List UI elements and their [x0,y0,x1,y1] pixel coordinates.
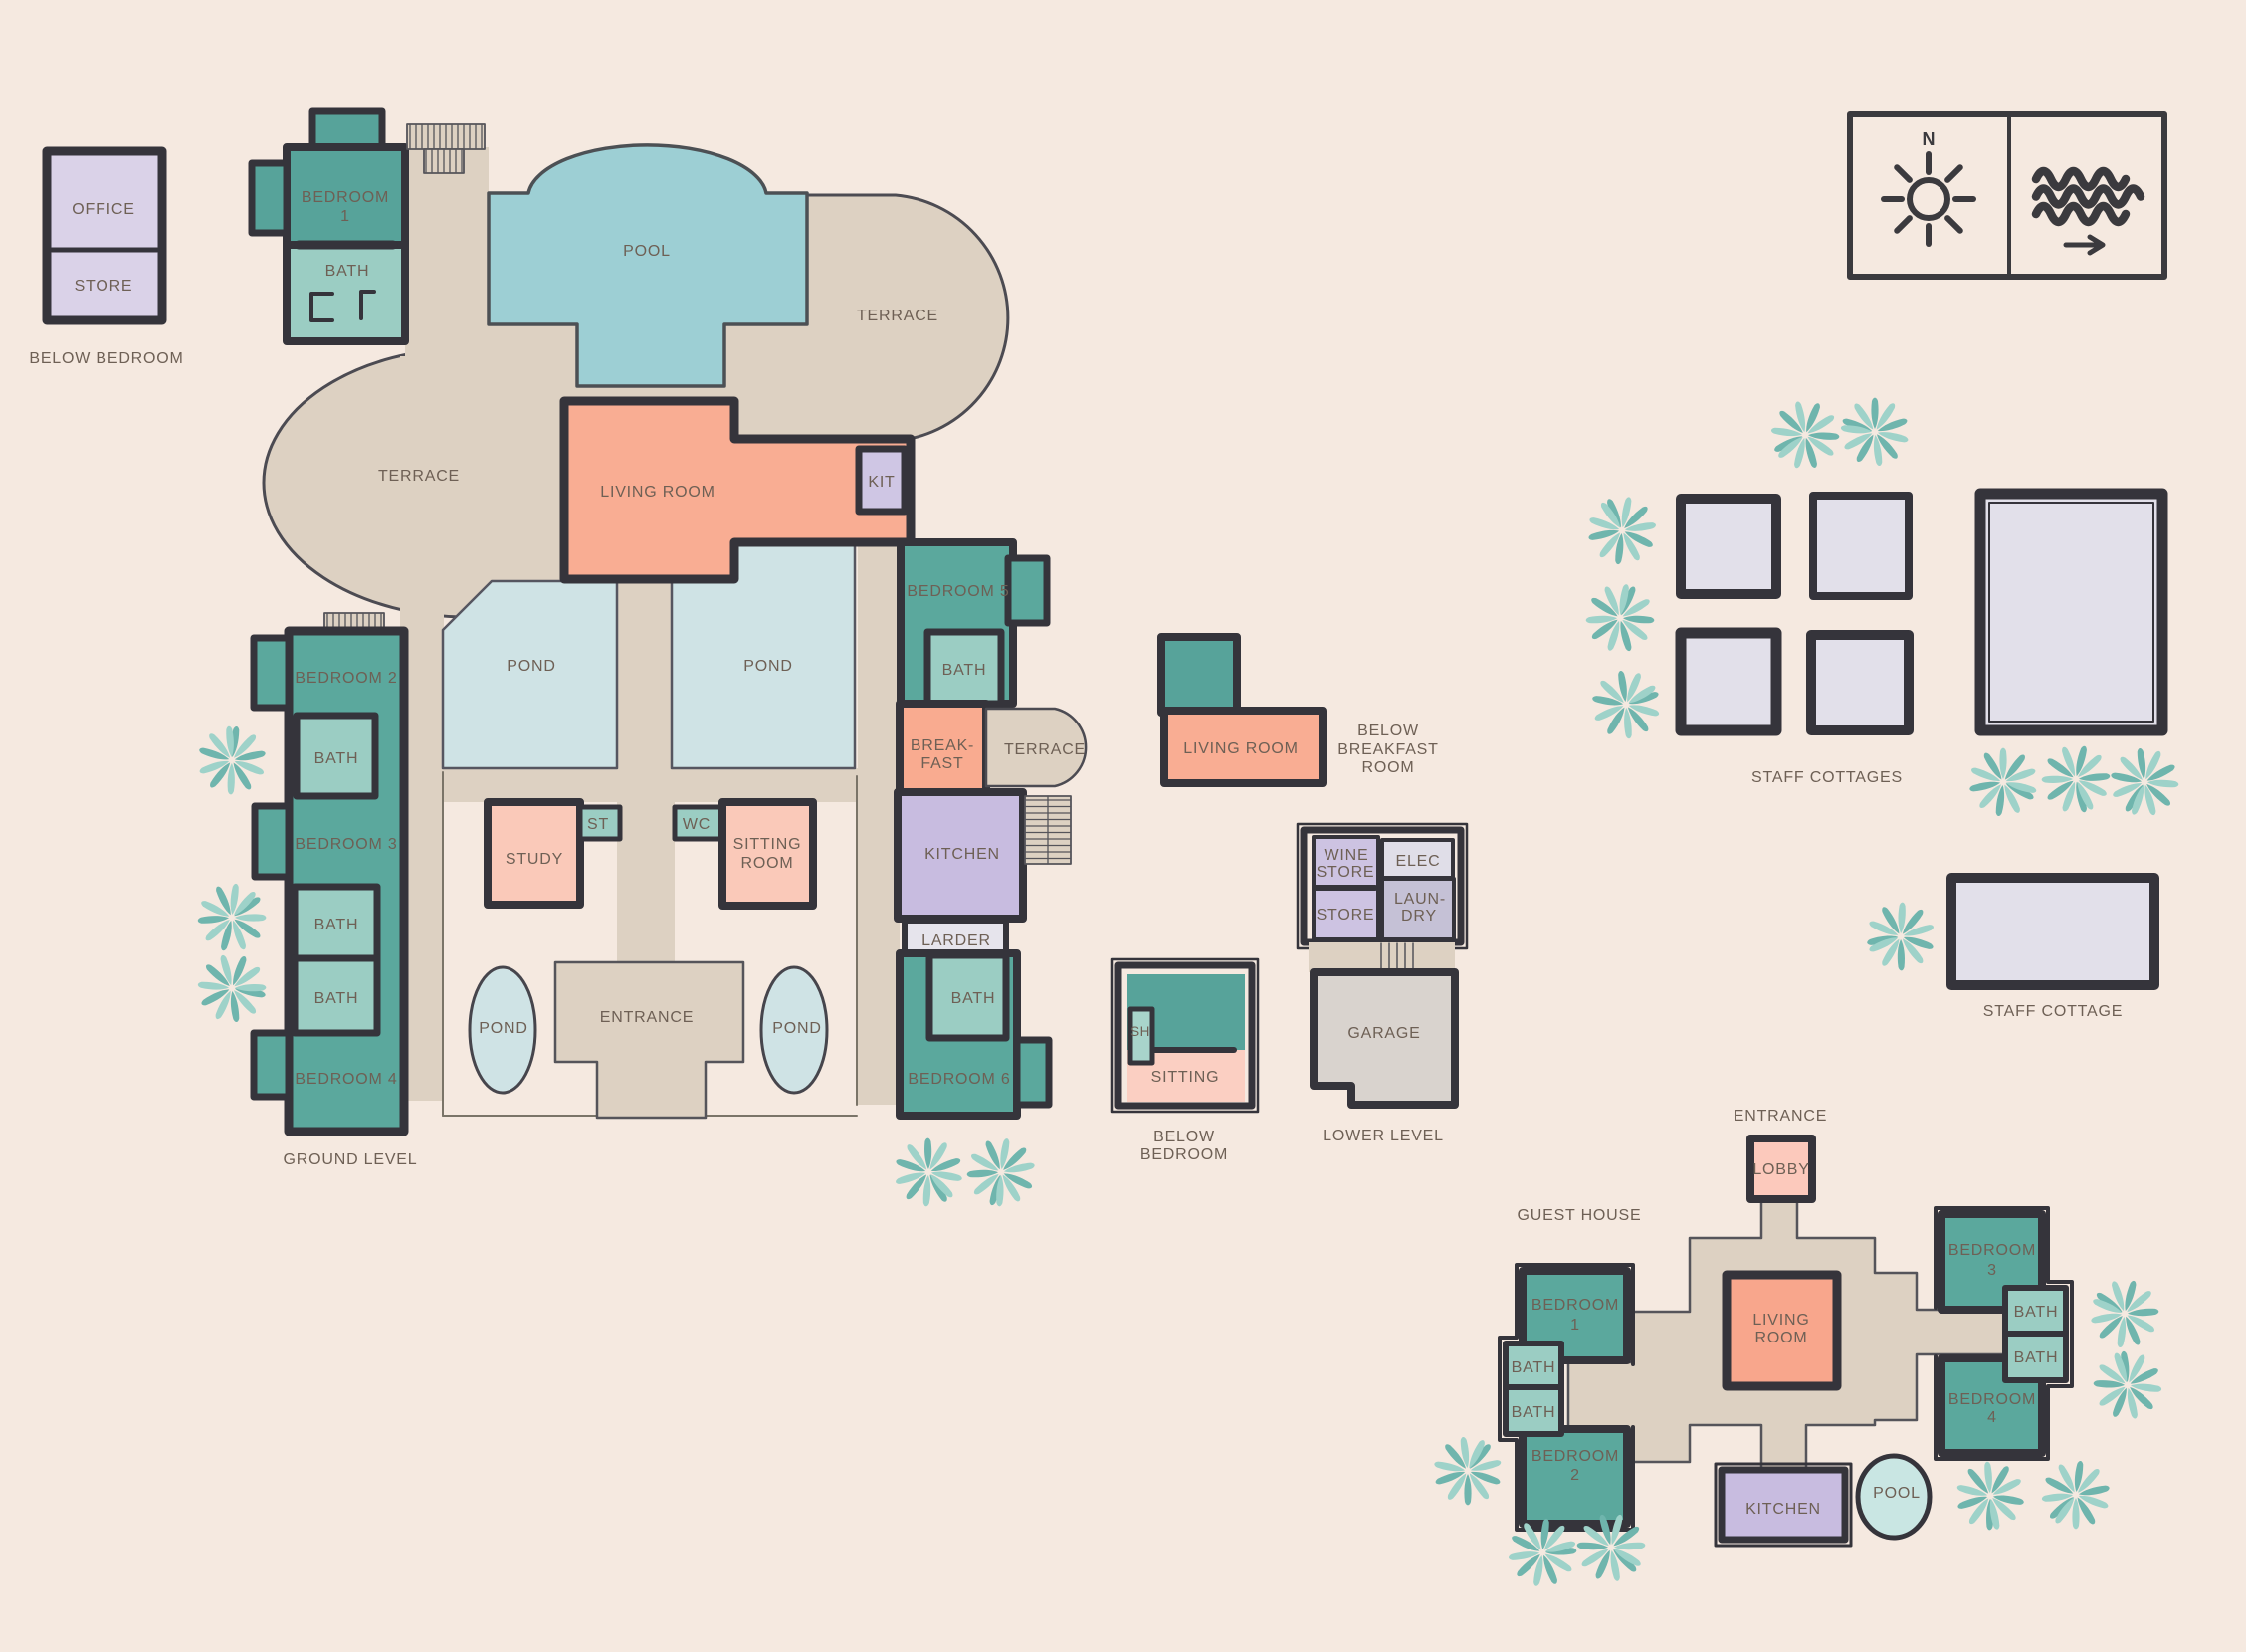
svg-text:BATH: BATH [951,990,996,1007]
svg-text:BEDROOM 4: BEDROOM 4 [295,1071,397,1088]
svg-text:BREAK-: BREAK- [911,737,974,754]
svg-text:SH: SH [1130,1024,1150,1039]
svg-text:BEDROOM: BEDROOM [1531,1448,1619,1465]
svg-text:ROOM: ROOM [1755,1330,1808,1346]
svg-text:ROOM: ROOM [1362,759,1415,776]
svg-text:STORE: STORE [1317,864,1375,881]
svg-text:POOL: POOL [623,243,671,260]
svg-text:BATH: BATH [2014,1349,2059,1366]
svg-text:BATH: BATH [1512,1359,1556,1376]
svg-text:STORE: STORE [75,278,133,295]
svg-text:3: 3 [1987,1262,1997,1279]
svg-text:KITCHEN: KITCHEN [924,846,1000,863]
svg-text:POOL: POOL [1873,1485,1921,1502]
svg-text:BEDROOM 6: BEDROOM 6 [908,1071,1010,1088]
svg-text:GUEST HOUSE: GUEST HOUSE [1518,1207,1642,1224]
svg-text:BEDROOM 5: BEDROOM 5 [907,583,1009,600]
svg-text:GARAGE: GARAGE [1347,1025,1420,1042]
svg-text:POND: POND [743,658,792,675]
svg-text:KITCHEN: KITCHEN [1745,1501,1821,1518]
svg-text:BEDROOM: BEDROOM [302,189,389,206]
svg-text:WC: WC [683,816,711,833]
svg-text:STUDY: STUDY [506,851,563,868]
svg-text:BATH: BATH [314,917,359,933]
svg-text:FAST: FAST [920,755,963,772]
svg-text:ROOM: ROOM [741,855,794,872]
svg-text:STAFF COTTAGES: STAFF COTTAGES [1751,769,1903,786]
svg-text:GROUND LEVEL: GROUND LEVEL [284,1151,418,1168]
svg-text:TERRACE: TERRACE [378,468,460,485]
svg-text:LIVING: LIVING [1752,1312,1809,1329]
svg-text:BEDROOM: BEDROOM [1948,1242,2036,1259]
svg-text:WINE: WINE [1325,847,1369,864]
svg-text:POND: POND [507,658,555,675]
svg-text:BEDROOM 3: BEDROOM 3 [295,836,397,853]
svg-text:2: 2 [1570,1467,1580,1484]
svg-text:LOWER LEVEL: LOWER LEVEL [1323,1128,1444,1144]
svg-text:LOBBY: LOBBY [1752,1161,1809,1178]
svg-text:BREAKFAST: BREAKFAST [1337,741,1438,758]
svg-text:ENTRANCE: ENTRANCE [600,1009,694,1026]
svg-text:LARDER: LARDER [921,932,991,949]
svg-text:BATH: BATH [2014,1304,2059,1321]
svg-text:BEDROOM: BEDROOM [1948,1391,2036,1408]
svg-text:BEDROOM: BEDROOM [1531,1297,1619,1314]
svg-text:BELOW: BELOW [1153,1129,1215,1145]
svg-text:BATH: BATH [325,263,370,280]
svg-text:BELOW: BELOW [1357,723,1419,739]
svg-text:1: 1 [340,208,350,225]
svg-text:1: 1 [1570,1317,1580,1334]
svg-text:KIT: KIT [868,474,895,491]
svg-text:POND: POND [479,1020,527,1037]
svg-text:ST: ST [587,816,609,833]
svg-text:LIVING ROOM: LIVING ROOM [1183,740,1298,757]
svg-text:BELOW BEDROOM: BELOW BEDROOM [29,350,183,367]
svg-text:LAUN-: LAUN- [1394,891,1446,908]
svg-text:BATH: BATH [314,750,359,767]
svg-text:TERRACE: TERRACE [857,308,938,324]
svg-text:BATH: BATH [314,990,359,1007]
svg-text:LIVING ROOM: LIVING ROOM [600,484,715,501]
svg-text:DRY: DRY [1401,908,1437,925]
svg-text:STORE: STORE [1317,907,1375,924]
svg-text:POND: POND [772,1020,821,1037]
svg-text:OFFICE: OFFICE [72,201,134,218]
svg-text:STAFF COTTAGE: STAFF COTTAGE [1983,1003,2123,1020]
svg-text:BATH: BATH [942,662,987,679]
svg-text:SITTING: SITTING [1151,1069,1220,1086]
svg-text:N: N [1923,129,1936,149]
svg-text:TERRACE: TERRACE [1004,741,1086,758]
svg-text:4: 4 [1987,1409,1997,1426]
svg-text:BEDROOM: BEDROOM [1140,1146,1228,1163]
svg-text:BATH: BATH [1512,1404,1556,1421]
svg-text:ENTRANCE: ENTRANCE [1734,1108,1827,1125]
svg-text:BEDROOM 2: BEDROOM 2 [295,670,397,687]
svg-text:ELEC: ELEC [1396,853,1441,870]
svg-text:SITTING: SITTING [733,836,802,853]
